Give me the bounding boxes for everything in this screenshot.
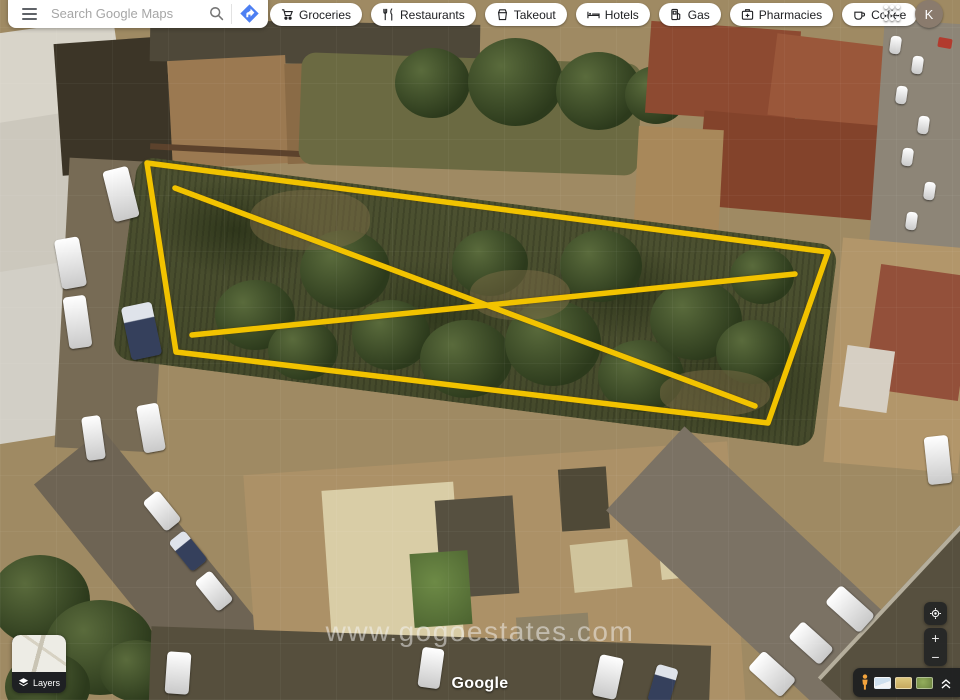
map-tree bbox=[420, 320, 512, 398]
search-bar bbox=[8, 0, 268, 28]
category-chips: Groceries Restaurants Takeout Hotels Gas… bbox=[270, 3, 917, 26]
chip-hotels[interactable]: Hotels bbox=[576, 3, 650, 26]
map-building bbox=[696, 110, 884, 220]
map-car bbox=[924, 435, 953, 485]
search-icon[interactable] bbox=[208, 5, 225, 22]
map-building bbox=[839, 345, 895, 413]
search-input[interactable] bbox=[49, 5, 208, 22]
layers-thumbnail bbox=[12, 635, 66, 672]
pharmacy-case-icon bbox=[741, 8, 754, 21]
map-dry-patch bbox=[470, 270, 570, 320]
watermark: www.gogoestates.com bbox=[326, 616, 635, 648]
map-building bbox=[767, 33, 891, 128]
imagery-thumbnail-terrain[interactable] bbox=[895, 677, 912, 689]
chip-restaurants[interactable]: Restaurants bbox=[371, 3, 476, 26]
zoom-out-button[interactable]: − bbox=[924, 647, 947, 666]
coffee-cup-icon bbox=[853, 8, 866, 21]
chip-label: Gas bbox=[688, 8, 710, 22]
map-dry-patch bbox=[660, 370, 770, 416]
chip-label: Groceries bbox=[299, 8, 351, 22]
chip-label: Restaurants bbox=[400, 8, 465, 22]
chip-label: Pharmacies bbox=[759, 8, 822, 22]
google-maps-window: www.gogoestates.com Google Groceries Res… bbox=[0, 0, 960, 700]
my-location-icon bbox=[930, 607, 941, 620]
pegman-icon[interactable] bbox=[860, 674, 870, 691]
map-tree bbox=[395, 48, 470, 118]
fork-knife-icon bbox=[382, 8, 395, 21]
map-tree bbox=[468, 38, 563, 126]
map-building bbox=[558, 466, 610, 531]
collapse-chevron-icon[interactable] bbox=[940, 676, 952, 690]
chip-pharmacies[interactable]: Pharmacies bbox=[730, 3, 833, 26]
takeout-bag-icon bbox=[496, 8, 509, 21]
imagery-toolbar bbox=[853, 668, 960, 697]
map-car bbox=[165, 651, 192, 695]
gas-pump-icon bbox=[670, 8, 683, 21]
directions-icon[interactable] bbox=[239, 3, 260, 24]
my-location-button[interactable] bbox=[924, 602, 947, 625]
map-building bbox=[570, 539, 633, 593]
layers-icon bbox=[18, 677, 29, 688]
bed-icon bbox=[587, 8, 600, 21]
imagery-thumbnail-map[interactable] bbox=[874, 677, 891, 689]
layers-label: Layers bbox=[33, 678, 60, 688]
account-avatar[interactable]: K bbox=[915, 0, 943, 28]
map-tree bbox=[730, 248, 794, 304]
chip-groceries[interactable]: Groceries bbox=[270, 3, 362, 26]
chip-gas[interactable]: Gas bbox=[659, 3, 721, 26]
divider bbox=[231, 4, 232, 24]
menu-icon[interactable] bbox=[22, 8, 37, 20]
avatar-initial: K bbox=[925, 7, 934, 22]
imagery-thumbnail-satellite[interactable] bbox=[916, 677, 933, 689]
chip-label: Hotels bbox=[605, 8, 639, 22]
map-tree bbox=[560, 230, 642, 302]
map-tree bbox=[268, 320, 338, 380]
satellite-imagery[interactable] bbox=[0, 0, 960, 700]
zoom-control: + − bbox=[924, 628, 947, 666]
chip-label: Takeout bbox=[514, 8, 556, 22]
layers-control[interactable]: Layers bbox=[12, 635, 66, 693]
shopping-cart-icon bbox=[281, 8, 294, 21]
google-logo: Google bbox=[452, 675, 509, 693]
map-dry-patch bbox=[250, 190, 370, 250]
map-tree bbox=[352, 300, 430, 370]
google-apps-icon[interactable] bbox=[884, 5, 900, 21]
chip-coffee[interactable]: Coffee bbox=[842, 3, 917, 26]
zoom-in-button[interactable]: + bbox=[924, 628, 947, 647]
chip-takeout[interactable]: Takeout bbox=[485, 3, 567, 26]
